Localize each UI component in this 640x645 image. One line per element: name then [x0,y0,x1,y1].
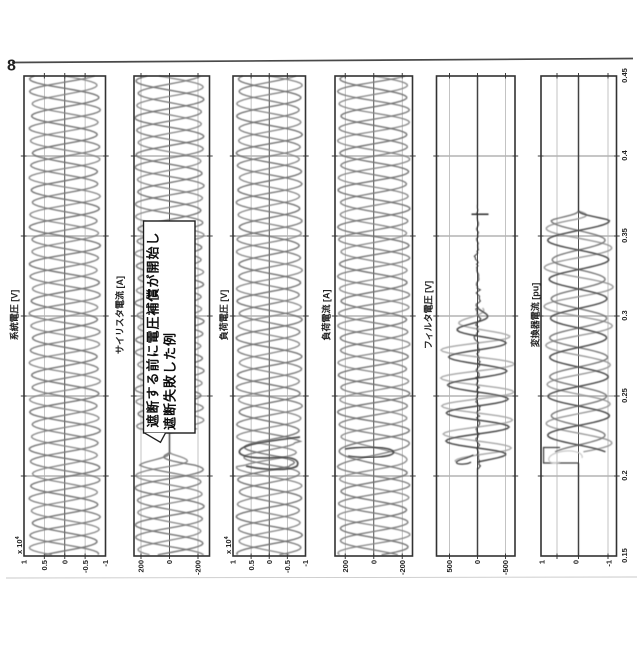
svg-text:0.35: 0.35 [620,228,629,243]
svg-text:フィルタ電圧 [V]: フィルタ電圧 [V] [422,281,433,349]
svg-text:1: 1 [538,560,547,564]
svg-text:200: 200 [137,560,146,573]
svg-text:変換器電流 [pu]: 変換器電流 [pu] [529,283,540,348]
svg-text:-200: -200 [194,560,203,575]
svg-text:-500: -500 [501,560,510,575]
svg-text:遮断する前に電圧補償が開始し: 遮断する前に電圧補償が開始し [146,231,161,427]
svg-text:500: 500 [445,560,454,573]
svg-text:0: 0 [265,560,274,564]
svg-text:0: 0 [369,560,378,564]
svg-text:0.45: 0.45 [620,68,629,83]
svg-text:0.15: 0.15 [620,548,629,563]
svg-text:200: 200 [341,560,350,573]
svg-text:8: 8 [7,58,16,75]
svg-text:-0.5: -0.5 [283,560,292,573]
svg-text:0.2: 0.2 [620,470,629,480]
svg-text:0: 0 [473,560,482,564]
svg-text:サイリスタ電流 [A]: サイリスタ電流 [A] [114,276,125,354]
svg-text:0.3: 0.3 [620,310,629,320]
svg-text:0.4: 0.4 [620,149,629,160]
svg-text:-1: -1 [301,560,310,567]
svg-text:負荷電流 [A]: 負荷電流 [A] [320,290,331,341]
svg-text:0: 0 [60,560,69,564]
svg-text:0.5: 0.5 [247,560,256,570]
svg-text:0.25: 0.25 [620,388,629,403]
svg-text:系統電圧 [V]: 系統電圧 [V] [9,290,20,341]
svg-text:-200: -200 [398,560,407,575]
svg-text:負荷電圧 [V]: 負荷電圧 [V] [218,290,229,341]
svg-text:-0.5: -0.5 [81,560,90,573]
svg-text:0.5: 0.5 [40,560,49,570]
svg-text:0: 0 [165,560,174,564]
svg-text:1: 1 [20,560,29,564]
svg-text:1: 1 [229,560,238,564]
svg-text:-1: -1 [605,560,614,567]
svg-text:-1: -1 [101,560,110,567]
svg-text:0: 0 [572,560,581,564]
svg-text:遮断失敗した例: 遮断失敗した例 [163,332,178,430]
